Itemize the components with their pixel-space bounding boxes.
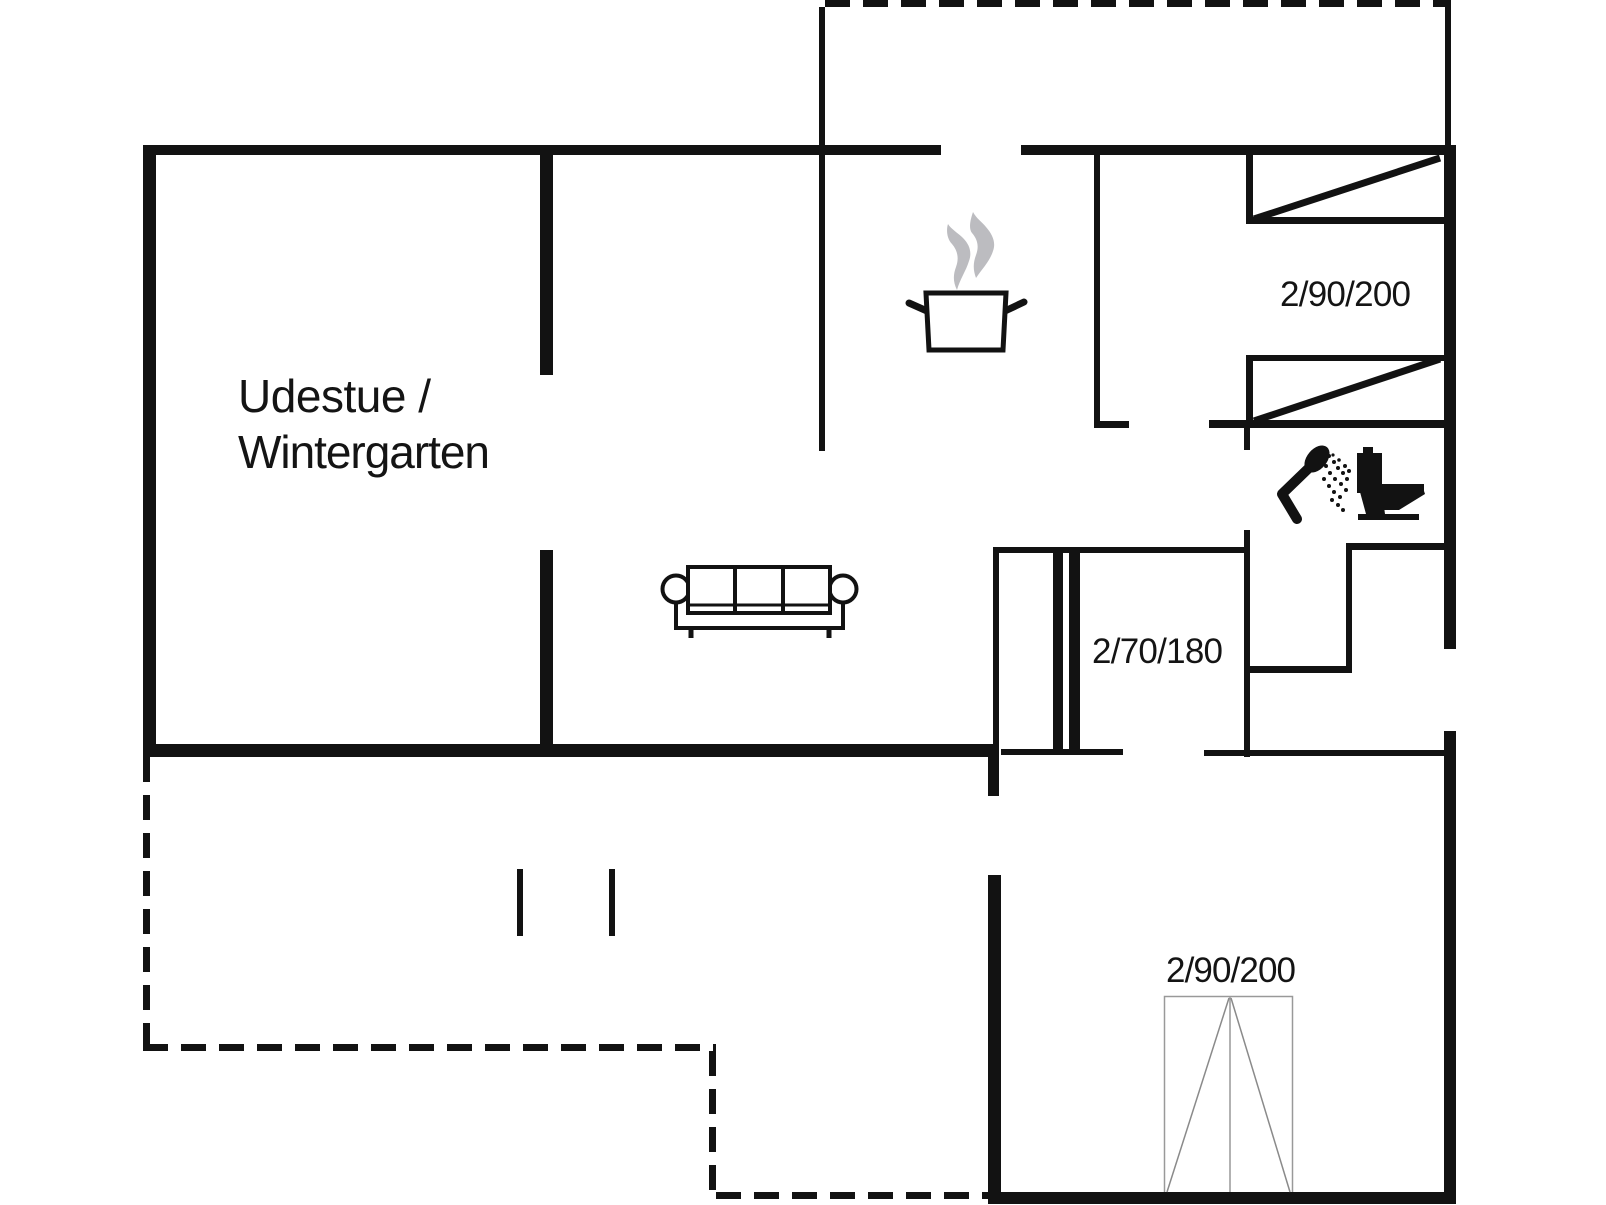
svg-text:Udestue /: Udestue / (238, 370, 431, 422)
svg-text:2/70/180: 2/70/180 (1092, 632, 1223, 671)
svg-text:2/90/200: 2/90/200 (1280, 275, 1411, 314)
svg-text:Wintergarten: Wintergarten (238, 426, 490, 478)
svg-text:2/90/200: 2/90/200 (1166, 951, 1296, 990)
